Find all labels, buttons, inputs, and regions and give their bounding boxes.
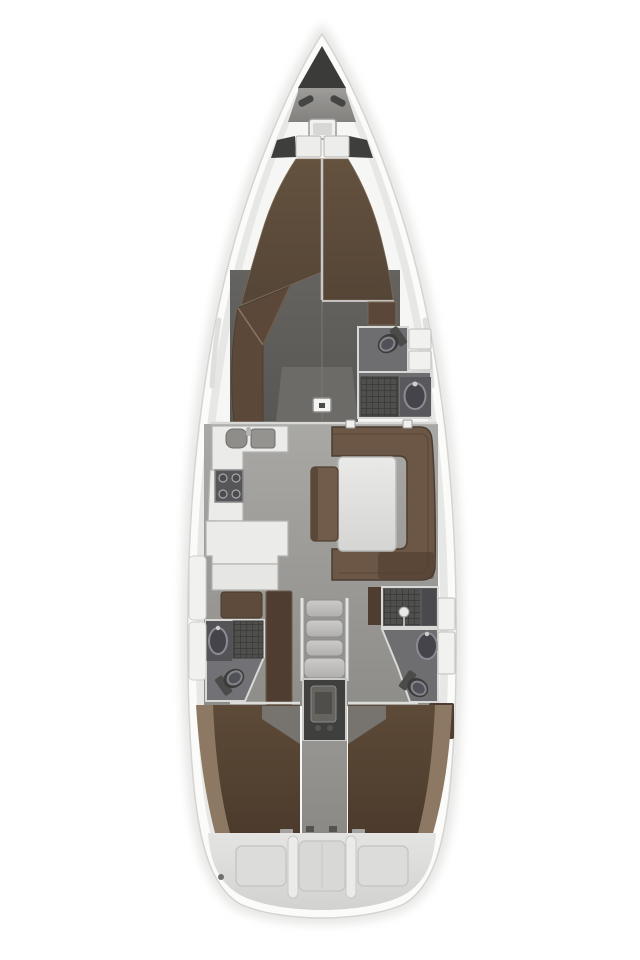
port-sink bbox=[209, 628, 227, 654]
sofa-dark-section bbox=[378, 552, 434, 579]
port-shower-grate-grid bbox=[233, 621, 263, 658]
step-1 bbox=[306, 600, 343, 617]
port-head-wardrobe bbox=[266, 591, 292, 705]
stbd-shower-cabinet bbox=[422, 589, 436, 625]
bow-hatch-glass bbox=[313, 123, 332, 135]
forward-head bbox=[358, 326, 431, 418]
stbd-shower-head bbox=[399, 607, 409, 617]
companionway bbox=[302, 598, 347, 833]
port-sink-faucet bbox=[216, 626, 220, 630]
stbd-head-locker-a bbox=[438, 598, 455, 630]
corridor-hinge-b bbox=[329, 826, 337, 832]
forward-cabin-floor-light bbox=[276, 367, 358, 421]
engine-pulley-a bbox=[315, 725, 321, 731]
stern-divider-port bbox=[288, 836, 298, 898]
engine-pulley-b bbox=[327, 725, 333, 731]
yacht-floor-plan bbox=[0, 0, 640, 960]
port-side-lockers bbox=[189, 556, 206, 680]
galley-basin-right bbox=[251, 429, 275, 448]
galley-lower-counter bbox=[206, 521, 288, 564]
stbd-sink-faucet bbox=[425, 632, 429, 636]
bulkhead-hinge-a bbox=[346, 420, 355, 428]
bulkhead-hinge-b bbox=[403, 420, 412, 428]
bedside-unit bbox=[368, 302, 396, 325]
forward-shower-grate-grid bbox=[361, 377, 398, 416]
nav-desk bbox=[212, 564, 278, 590]
step-3 bbox=[306, 640, 343, 656]
stern-fitting-dot bbox=[218, 874, 224, 880]
engine-detail bbox=[315, 692, 332, 714]
forward-sink-faucet bbox=[413, 382, 418, 387]
aft-cabin-port bbox=[196, 703, 300, 836]
head-shelf-starboard bbox=[324, 136, 349, 157]
dinette-bench-edge bbox=[311, 467, 318, 541]
forward-sink bbox=[405, 383, 426, 409]
step-4 bbox=[304, 658, 345, 678]
stbd-head-wardrobe-fwd bbox=[368, 587, 382, 625]
salon-table bbox=[338, 457, 396, 551]
aft-corridor bbox=[302, 741, 347, 833]
galley-basin-left bbox=[226, 429, 247, 448]
stbd-sink bbox=[417, 633, 437, 659]
stern-panel-port bbox=[236, 846, 286, 886]
step-2 bbox=[306, 620, 343, 637]
stern-divider-starboard bbox=[346, 836, 356, 898]
nav-seat bbox=[221, 592, 262, 618]
aft-cabin-starboard bbox=[348, 703, 452, 836]
stbd-head-locker-b bbox=[438, 632, 455, 674]
cabin-door-handle bbox=[319, 403, 325, 408]
galley-faucet bbox=[246, 427, 251, 436]
head-shelf-port bbox=[296, 136, 321, 157]
port-locker-a bbox=[189, 556, 206, 620]
forward-head-locker-a bbox=[409, 329, 431, 349]
floor-plan-canvas bbox=[0, 0, 640, 960]
anchor-locker-sill bbox=[298, 88, 346, 92]
port-locker-b bbox=[189, 622, 206, 680]
stern-panel-starboard bbox=[358, 846, 408, 886]
forward-head-locker-b bbox=[409, 351, 431, 370]
corridor-hinge-a bbox=[306, 826, 314, 832]
foredeck bbox=[288, 92, 356, 122]
